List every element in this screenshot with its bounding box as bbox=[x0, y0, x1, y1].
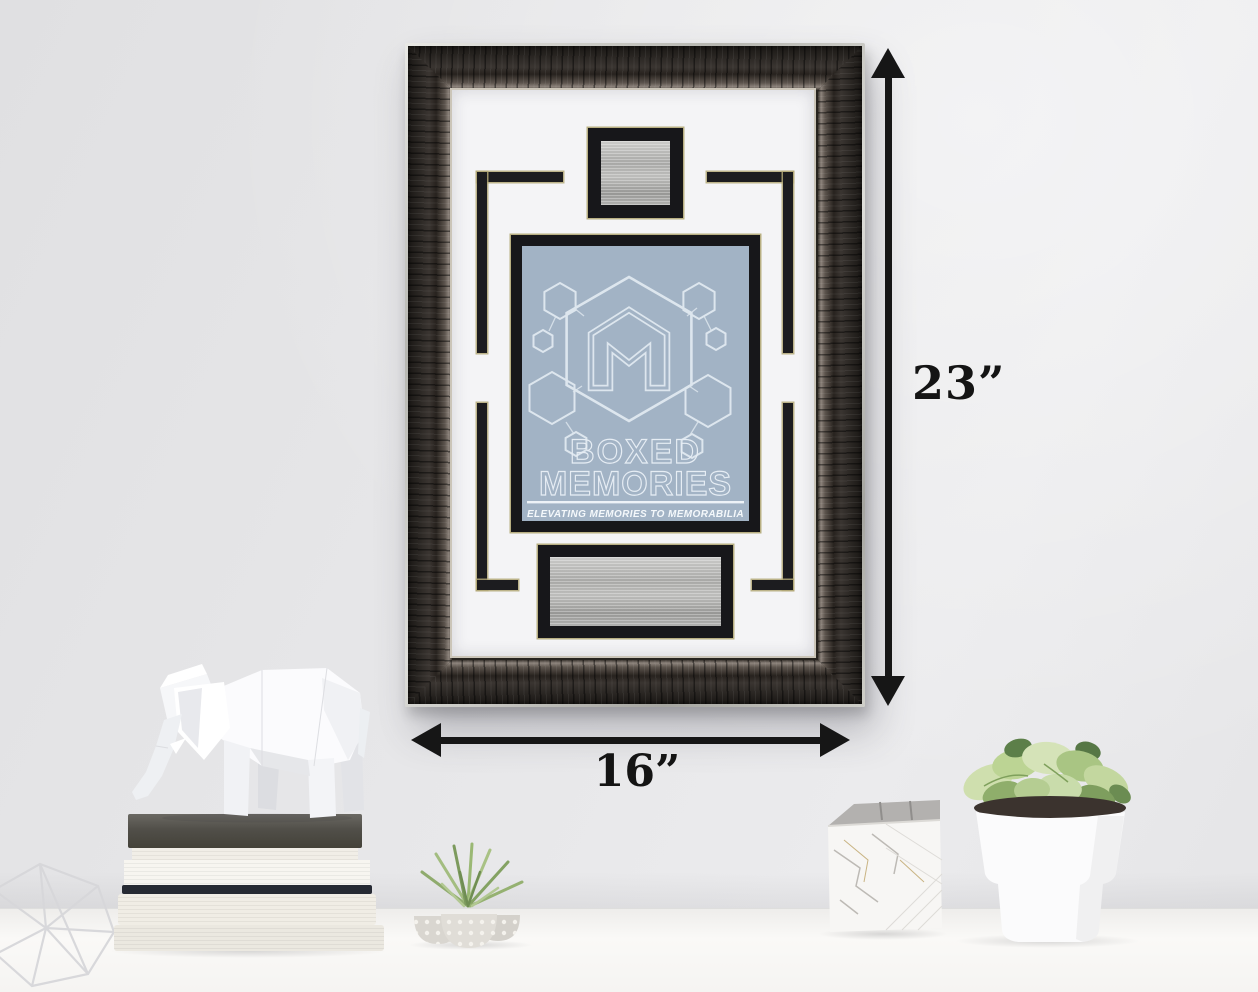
top-plate-silver bbox=[601, 141, 670, 205]
mat-accent-top-left-v bbox=[477, 172, 487, 353]
book-2-cover bbox=[122, 885, 372, 894]
mat-accent-top-right-v bbox=[783, 172, 793, 353]
logo-print: BOXED MEMORIES ELEVATING MEMORIES TO MEM… bbox=[511, 235, 760, 532]
print-rule bbox=[527, 501, 744, 503]
polka-dot-pots bbox=[414, 914, 520, 948]
book-4 bbox=[114, 925, 384, 951]
book-1-pages bbox=[132, 848, 358, 860]
product-scene: BOXED MEMORIES ELEVATING MEMORIES TO MEM… bbox=[0, 0, 1258, 992]
book-2-pages bbox=[124, 860, 370, 885]
frame-silver-edge: BOXED MEMORIES ELEVATING MEMORIES TO MEM… bbox=[405, 43, 865, 707]
air-plant-leaves bbox=[422, 844, 522, 906]
width-arrow-line bbox=[439, 737, 821, 744]
mat-accent-bottom-right-v bbox=[783, 403, 793, 590]
width-arrow-right-icon bbox=[820, 723, 850, 757]
frame-side-right bbox=[818, 46, 862, 704]
bottom-plate-silver bbox=[550, 557, 721, 626]
marble-pen-cup bbox=[820, 790, 950, 936]
print-title-line2: MEMORIES bbox=[539, 465, 732, 503]
frame-side-bottom bbox=[408, 660, 862, 704]
frame-side-left bbox=[408, 46, 452, 704]
mat-accent-bottom-left-v bbox=[477, 403, 487, 590]
mat-accent-top-left-h bbox=[477, 172, 563, 182]
potted-plant bbox=[948, 724, 1153, 952]
height-arrow-line bbox=[885, 76, 892, 676]
mat-accent-bottom-right-h bbox=[752, 580, 793, 590]
width-dimension-label: 16” bbox=[587, 746, 687, 797]
print-tagline: ELEVATING MEMORIES TO MEMORABILIA bbox=[527, 509, 744, 520]
mat-accent-top-right-h bbox=[707, 172, 793, 182]
air-plant bbox=[402, 842, 537, 950]
top-engraving-plate bbox=[588, 128, 683, 218]
bottom-engraving-plate bbox=[538, 545, 733, 638]
mat-accent-bottom-left-h bbox=[477, 580, 518, 590]
picture-frame: BOXED MEMORIES ELEVATING MEMORIES TO MEM… bbox=[408, 46, 862, 704]
elephant-figurine bbox=[112, 648, 392, 823]
book-stack bbox=[112, 812, 388, 952]
height-arrow-up-icon bbox=[871, 48, 905, 78]
height-arrow-down-icon bbox=[871, 676, 905, 706]
wire-ornament bbox=[0, 856, 126, 992]
height-dimension-label: 23” bbox=[912, 356, 1005, 410]
book-3 bbox=[118, 894, 376, 925]
logo-print-art: BOXED MEMORIES ELEVATING MEMORIES TO MEM… bbox=[522, 246, 749, 521]
frame-side-top bbox=[408, 46, 862, 90]
width-arrow-left-icon bbox=[411, 723, 441, 757]
